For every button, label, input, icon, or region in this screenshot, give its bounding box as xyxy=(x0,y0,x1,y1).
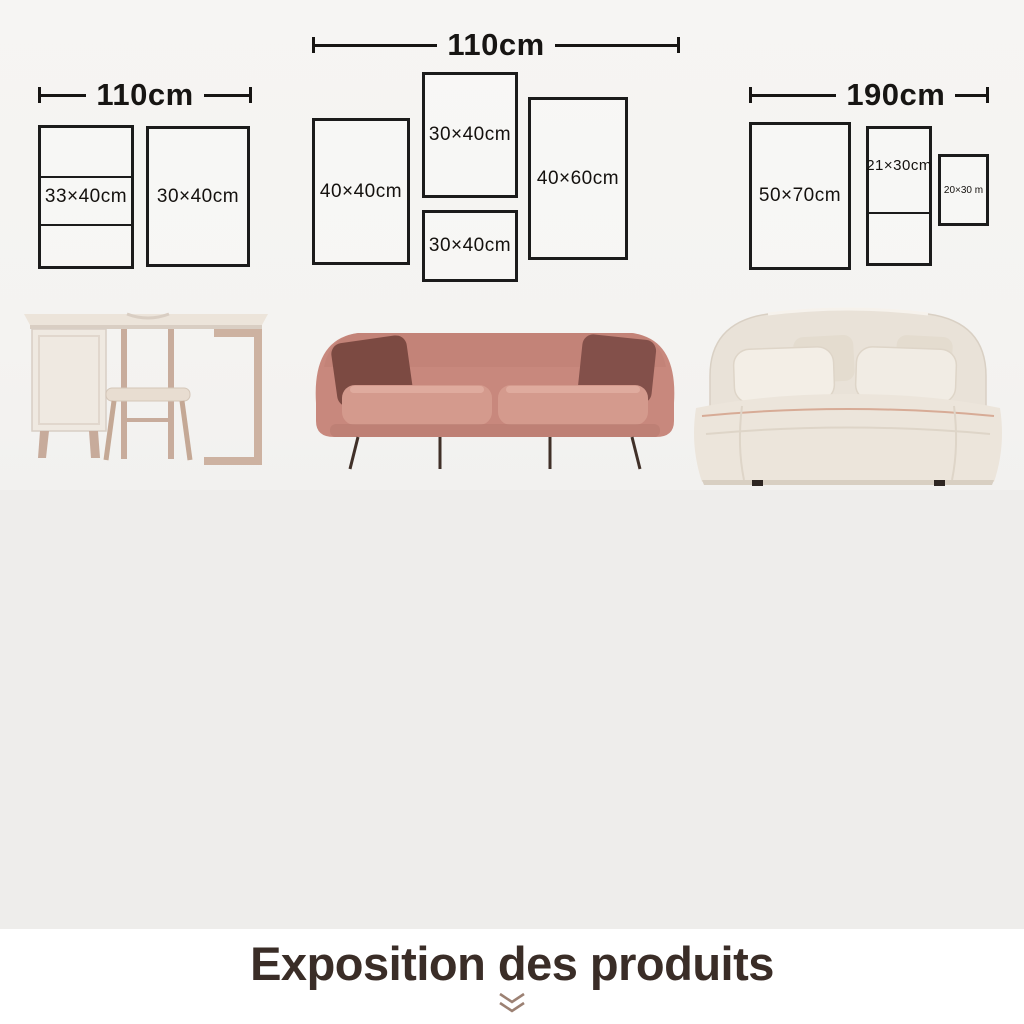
dimension-tick xyxy=(986,87,989,103)
sizes-panel: Tailles: 13x18cm = 5x7 inch 20x30cm = 8x… xyxy=(0,490,1024,929)
footer-section: Exposition des produits xyxy=(0,929,1024,1024)
dimension-rule xyxy=(315,44,437,47)
frame-size-label: 20×30 m xyxy=(944,185,983,196)
picture-frame-40x40: 40×40cm xyxy=(312,118,410,265)
desk-with-chair-image xyxy=(18,298,274,483)
frame-size-label: 40×40cm xyxy=(320,181,402,203)
dimension-tick xyxy=(677,37,680,53)
wall-section: 110cm 33×40cm 30×40cm 110cm 40×40cm 30×4… xyxy=(0,0,1024,490)
bed-image xyxy=(682,296,1014,488)
dimension-line-center-group: 110cm xyxy=(312,27,680,63)
dimension-rule xyxy=(752,94,836,97)
picture-frame-50x70: 50×70cm xyxy=(749,122,851,270)
page-title: Exposition des produits xyxy=(0,936,1024,991)
pink-sofa-image xyxy=(300,305,690,473)
dimension-label: 110cm xyxy=(447,27,544,63)
picture-frame-30x40-top: 30×40cm xyxy=(422,72,518,198)
dimension-rule xyxy=(955,94,986,97)
frame-size-label: 40×60cm xyxy=(537,168,619,190)
picture-frame-20x30: 20×30 m xyxy=(938,154,989,226)
frame-divider xyxy=(41,224,131,226)
picture-frame-40x60: 40×60cm xyxy=(528,97,628,260)
dimension-rule xyxy=(204,94,249,97)
dimension-line-left-group: 110cm xyxy=(38,77,252,113)
frame-size-label: 30×40cm xyxy=(429,124,511,146)
frame-size-label: 21×30cm xyxy=(866,157,932,174)
frame-divider xyxy=(41,176,131,178)
picture-frame-21x30: 21×30cm xyxy=(866,126,932,266)
dimension-label: 190cm xyxy=(846,77,945,113)
picture-frame-30x40: 30×40cm xyxy=(146,126,250,267)
picture-frame-33x40: 33×40cm xyxy=(38,125,134,269)
dimension-rule xyxy=(555,44,677,47)
dimension-label: 110cm xyxy=(96,77,193,113)
dimension-line-right-group: 190cm xyxy=(749,77,989,113)
dimension-rule xyxy=(41,94,86,97)
frame-size-label: 30×40cm xyxy=(429,235,511,257)
double-chevron-down-icon xyxy=(494,992,530,1016)
dimension-tick xyxy=(249,87,252,103)
frame-size-label: 30×40cm xyxy=(157,186,239,208)
frame-divider xyxy=(869,212,929,214)
frame-size-label: 50×70cm xyxy=(759,185,841,207)
picture-frame-30x40-bottom: 30×40cm xyxy=(422,210,518,282)
product-display-image: 110cm 33×40cm 30×40cm 110cm 40×40cm 30×4… xyxy=(0,0,1024,1024)
frame-size-label: 33×40cm xyxy=(45,186,127,208)
